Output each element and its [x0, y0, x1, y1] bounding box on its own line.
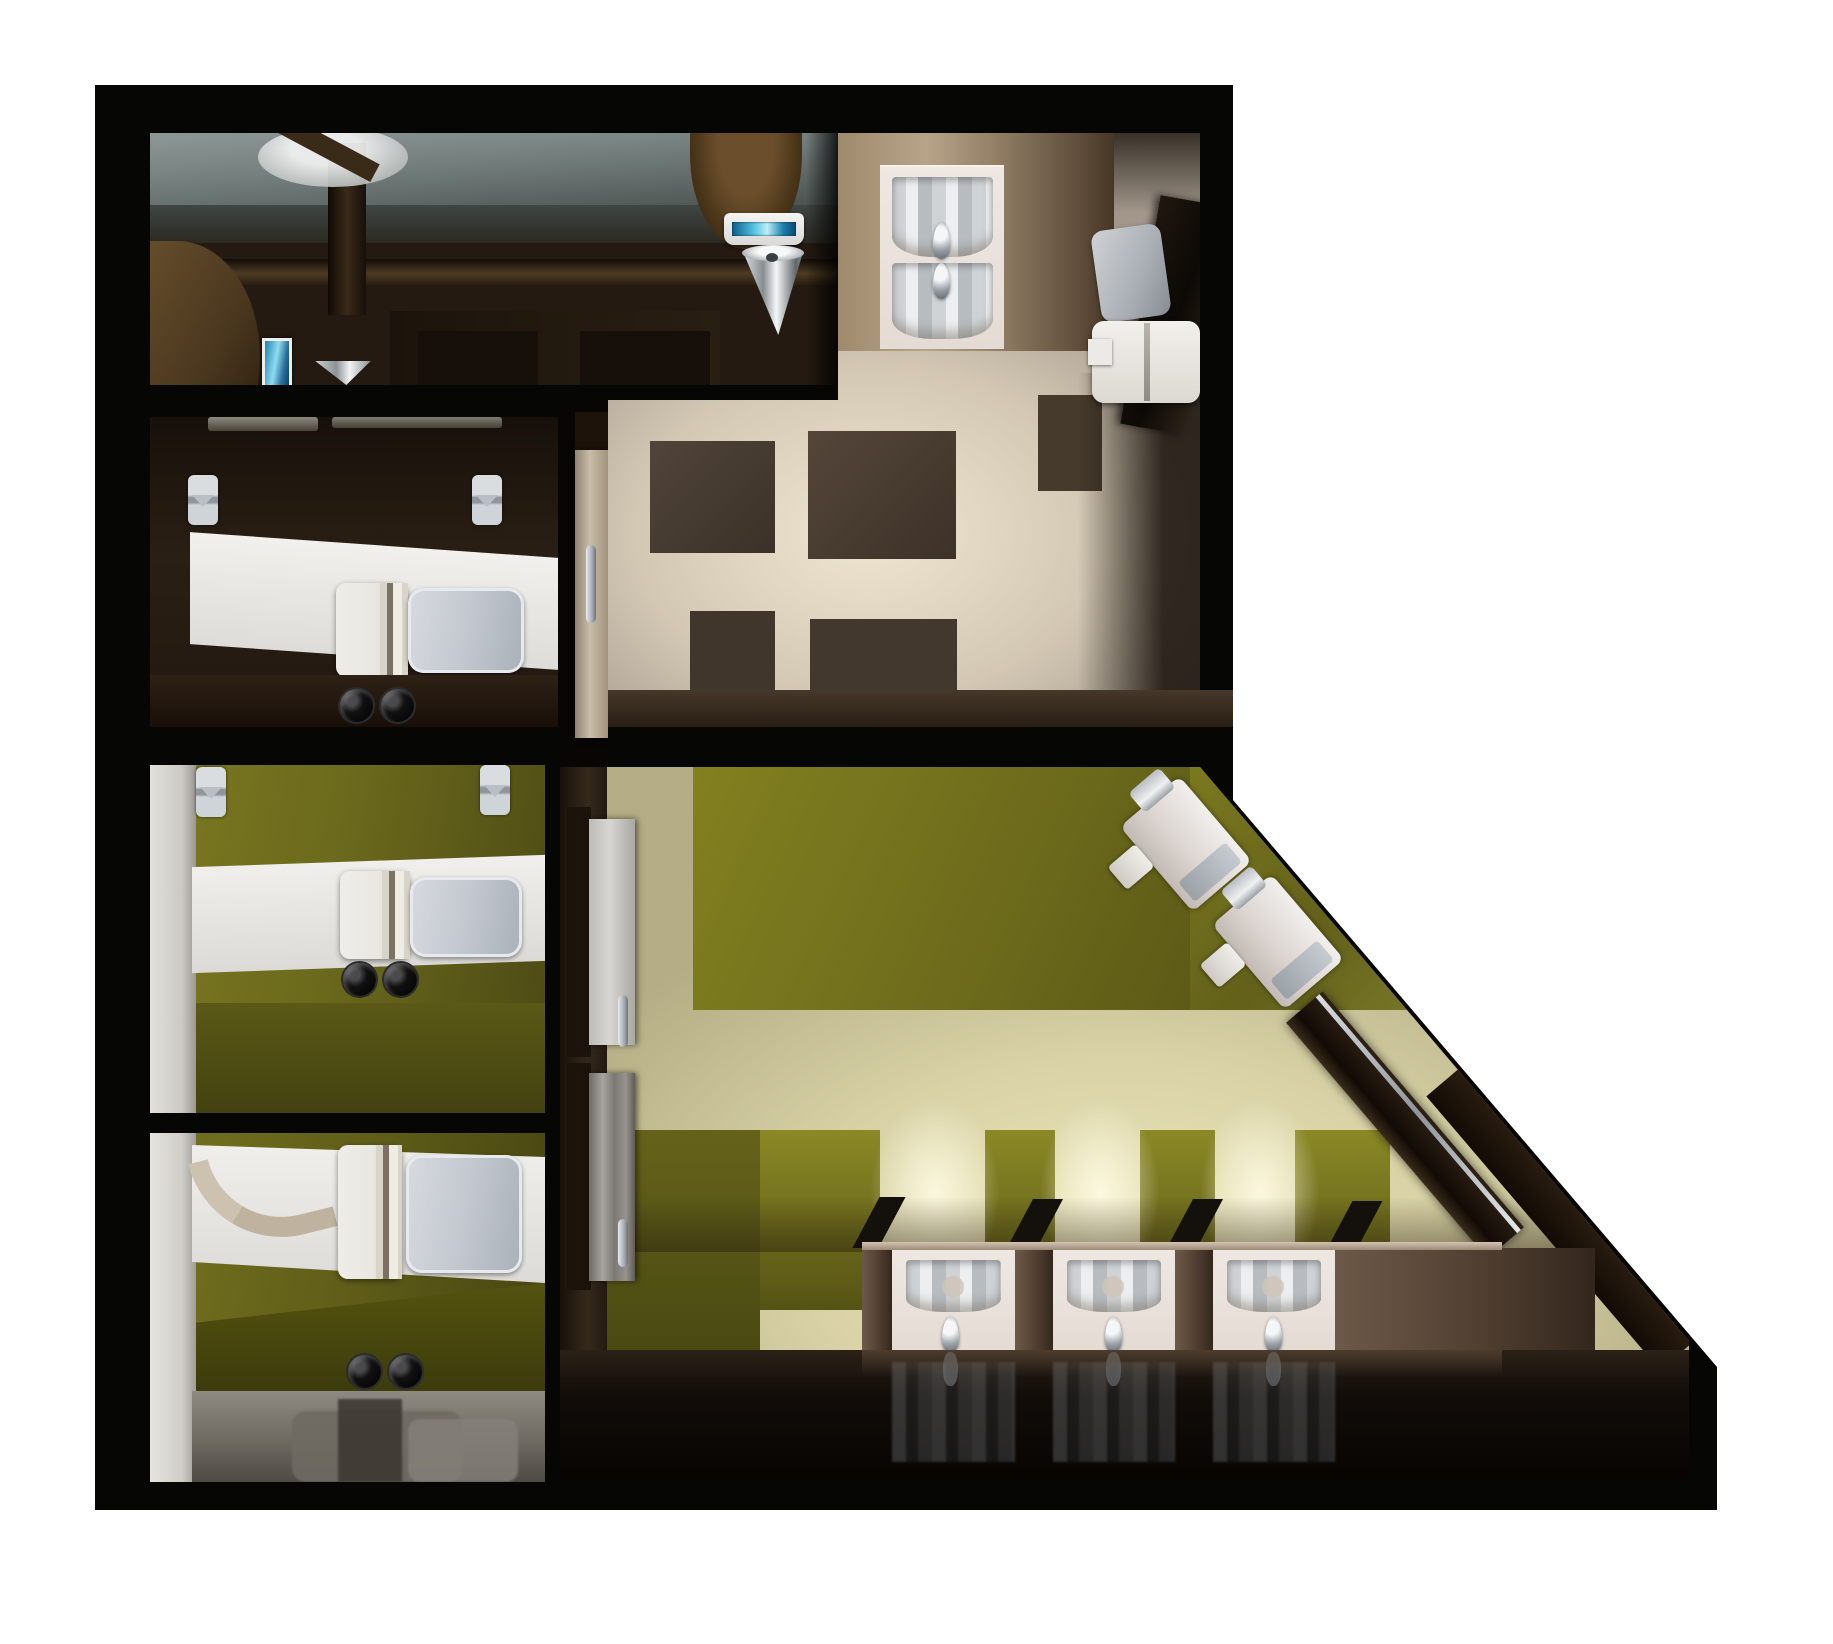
sink-faucet	[1265, 1317, 1282, 1353]
stall-door-frame	[567, 807, 591, 1057]
toilet-paper-holder	[196, 767, 226, 817]
wall-toilet-gray	[1090, 223, 1172, 324]
toilet-tank-chrome	[380, 583, 408, 677]
toilet-white-seam	[1144, 323, 1150, 401]
soap-dot	[942, 1276, 964, 1298]
toilet-tank-chrome	[376, 1145, 402, 1279]
stall2-floor-olive-dark	[196, 1003, 545, 1113]
stall-door-handle	[618, 995, 628, 1047]
counter-reflection	[862, 1350, 1502, 1376]
vanity-faucet-2	[933, 263, 950, 299]
room-a-east-shadow	[806, 133, 838, 385]
toilet-tank-chrome	[382, 871, 410, 959]
room-mech	[150, 133, 838, 385]
floor-tile-dark	[650, 441, 775, 553]
stall-2	[150, 765, 545, 1113]
toilet-tank	[340, 871, 410, 959]
toilet-seat	[410, 877, 522, 957]
stall3-west-wall-lit	[150, 1133, 196, 1482]
flush-valve-pair	[343, 963, 417, 997]
soap-dot	[1102, 1276, 1124, 1298]
toilet-side-box	[1088, 339, 1112, 365]
toilet-paper-holder	[472, 475, 502, 525]
hand-dryer-screen	[732, 222, 796, 236]
powder-south-wall-face	[608, 690, 1233, 727]
floor-tile-dark	[690, 611, 775, 690]
building-shell-walls	[0, 0, 1833, 1644]
entry-door-handle	[586, 545, 596, 623]
vestibule	[558, 400, 608, 765]
sink-faucet	[1105, 1317, 1122, 1353]
stall-1	[150, 417, 558, 727]
fountain-drain	[766, 253, 778, 262]
dark-floor-tile	[580, 331, 710, 385]
flush-valve-pair	[340, 689, 414, 723]
stall1-top-highlight	[332, 417, 502, 428]
stall-door-mirror	[589, 1073, 635, 1281]
vanity-faucet-1	[933, 223, 950, 259]
soap-dot	[1262, 1276, 1284, 1298]
toilet-seat	[408, 588, 524, 673]
hand-dryer	[724, 213, 804, 245]
toilet-seat	[406, 1155, 522, 1273]
sink-faucet	[942, 1317, 959, 1353]
toilet-tank	[336, 583, 408, 677]
toilet-paper-holder	[480, 765, 510, 815]
sink-counter-left-end	[862, 1248, 892, 1350]
toilet-reflection	[338, 1399, 402, 1482]
wood-beam-horizontal	[150, 259, 838, 285]
flush-valve-pair	[348, 1355, 422, 1389]
sink-partition	[1015, 1248, 1053, 1350]
stall-door	[589, 819, 635, 1045]
teal-display-screen	[262, 338, 292, 385]
floor-tile-dark	[810, 619, 957, 690]
render-canvas	[0, 0, 1833, 1644]
stall2-west-wall-lit	[150, 765, 196, 1113]
sink-counter-right	[1335, 1248, 1595, 1350]
counter-top-edge	[862, 1242, 1502, 1250]
toilet-reflection	[408, 1419, 518, 1482]
floor-tile-dark	[808, 431, 956, 559]
entry-door-header	[575, 412, 608, 454]
stall-door-handle	[618, 1219, 628, 1267]
main-room	[560, 767, 1717, 1480]
dark-floor-tile	[418, 331, 538, 385]
stall-3	[150, 1133, 545, 1482]
sink-partition	[1175, 1248, 1213, 1350]
stall3-reflective-floor	[192, 1391, 545, 1482]
teal-screen-glass	[265, 341, 289, 385]
stall1-top-highlight	[208, 417, 318, 431]
toilet-tank	[338, 1145, 402, 1279]
toilet-paper-holder	[188, 475, 218, 525]
main-floor-olive-main	[693, 767, 1190, 1010]
stall-door-frame	[567, 1063, 591, 1290]
reflective-floor	[560, 1350, 1717, 1480]
drinking-fountain-cone	[740, 251, 806, 335]
chrome-cone-urinal	[310, 361, 376, 385]
